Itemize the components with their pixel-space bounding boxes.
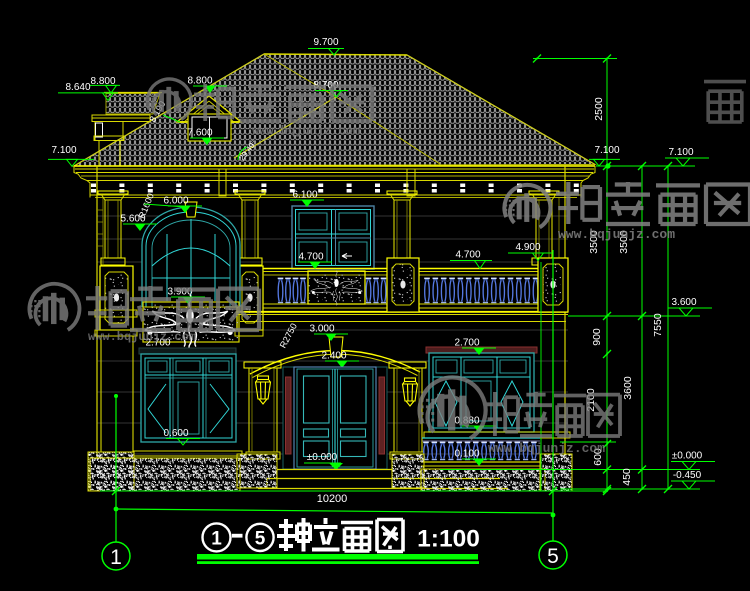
svg-text:5: 5: [255, 529, 266, 550]
svg-text:900: 900: [591, 328, 603, 346]
svg-text:1:100: 1:100: [417, 526, 480, 553]
svg-text:7550: 7550: [652, 313, 664, 337]
svg-text:7.600: 7.600: [187, 128, 212, 139]
svg-text:8.800: 8.800: [187, 76, 212, 87]
svg-text:450: 450: [621, 468, 633, 486]
svg-text:8.640: 8.640: [65, 82, 90, 93]
svg-text:www.bqjunjz.com: www.bqjunjz.com: [252, 124, 360, 138]
svg-text:1: 1: [110, 546, 122, 569]
svg-text:4.700: 4.700: [455, 250, 480, 261]
svg-text:6.000: 6.000: [163, 196, 188, 207]
svg-text:www.bqjunjz.com: www.bqjunjz.com: [488, 441, 605, 456]
svg-text:±0.000: ±0.000: [672, 451, 703, 462]
svg-text:7.100: 7.100: [51, 145, 76, 156]
svg-text:5.600: 5.600: [120, 214, 145, 225]
svg-text:-0.450: -0.450: [673, 470, 702, 481]
svg-text:7.100: 7.100: [594, 145, 619, 156]
svg-text:7.100: 7.100: [668, 147, 693, 158]
svg-text:0.600: 0.600: [163, 428, 188, 439]
svg-text:3600: 3600: [622, 376, 634, 400]
svg-text:4.900: 4.900: [515, 242, 540, 253]
svg-text:9.700: 9.700: [313, 37, 338, 48]
svg-text:0.100: 0.100: [454, 449, 479, 460]
svg-text:10200: 10200: [317, 493, 348, 505]
svg-text:2.400: 2.400: [321, 351, 346, 362]
svg-text:2.700: 2.700: [454, 338, 479, 349]
svg-text:4.700: 4.700: [298, 252, 323, 263]
svg-text:6.100: 6.100: [292, 190, 317, 201]
svg-text:www.bqjunjz.com: www.bqjunjz.com: [558, 227, 675, 242]
svg-text:5: 5: [547, 545, 559, 568]
svg-text:www.bqjunjz.com: www.bqjunjz.com: [88, 330, 196, 344]
svg-text:1: 1: [211, 529, 222, 550]
svg-text:±0.000: ±0.000: [307, 452, 338, 463]
svg-text:2500: 2500: [593, 97, 605, 121]
svg-text:3.000: 3.000: [309, 324, 334, 335]
svg-text:3.600: 3.600: [671, 297, 696, 308]
